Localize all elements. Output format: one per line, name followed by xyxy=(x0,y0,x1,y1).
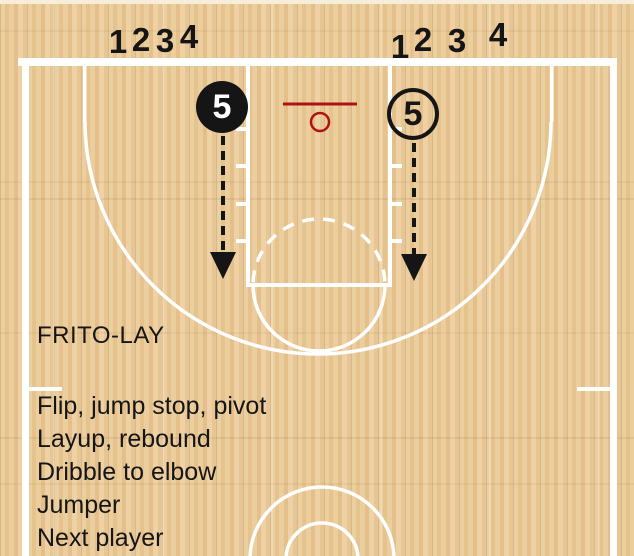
center-circle-inner xyxy=(286,523,358,556)
lane-hash-marks xyxy=(236,127,402,243)
movement-arrow[interactable] xyxy=(401,143,427,281)
drill-notes: Flip, jump stop, pivotLayup, reboundDrib… xyxy=(37,390,266,555)
queue-right-number-4[interactable]: 4 xyxy=(489,18,507,51)
queue-left-number-2[interactable]: 2 xyxy=(132,23,150,56)
queue-left-number-1[interactable]: 1 xyxy=(109,25,127,58)
arrowhead-icon xyxy=(210,252,236,279)
note-line: Layup, rebound xyxy=(37,423,266,456)
three-point-right-segment xyxy=(550,60,554,122)
three-point-left-segment xyxy=(83,60,87,122)
right-sideline-hash xyxy=(577,387,610,391)
queue-left-number-4[interactable]: 4 xyxy=(180,20,198,53)
play-diagram: 12341234 55 FRITO-LAY Flip, jump stop, p… xyxy=(0,0,634,556)
player-marker-outline[interactable]: 5 xyxy=(387,88,439,140)
movement-arrow[interactable] xyxy=(210,136,236,279)
player-marker-filled[interactable]: 5 xyxy=(196,81,248,133)
movement-arrows xyxy=(210,136,427,281)
drill-title: FRITO-LAY xyxy=(37,322,165,350)
queue-right-number-3[interactable]: 3 xyxy=(448,24,466,57)
note-line: Flip, jump stop, pivot xyxy=(37,390,266,423)
left-sideline xyxy=(22,58,29,556)
right-sideline xyxy=(610,58,617,556)
arrowhead-icon xyxy=(401,254,427,281)
free-throw-line xyxy=(246,283,392,287)
lane-line-left xyxy=(246,62,250,285)
note-line: Jumper xyxy=(37,489,266,522)
basket-rim xyxy=(311,113,329,131)
note-line: Dribble to elbow xyxy=(37,456,266,489)
queue-left-number-3[interactable]: 3 xyxy=(156,24,174,57)
note-line: Next player xyxy=(37,522,266,555)
queue-right-number-1[interactable]: 1 xyxy=(391,30,409,63)
queue-right-number-2[interactable]: 2 xyxy=(414,23,432,56)
lane-line-right xyxy=(388,62,392,285)
